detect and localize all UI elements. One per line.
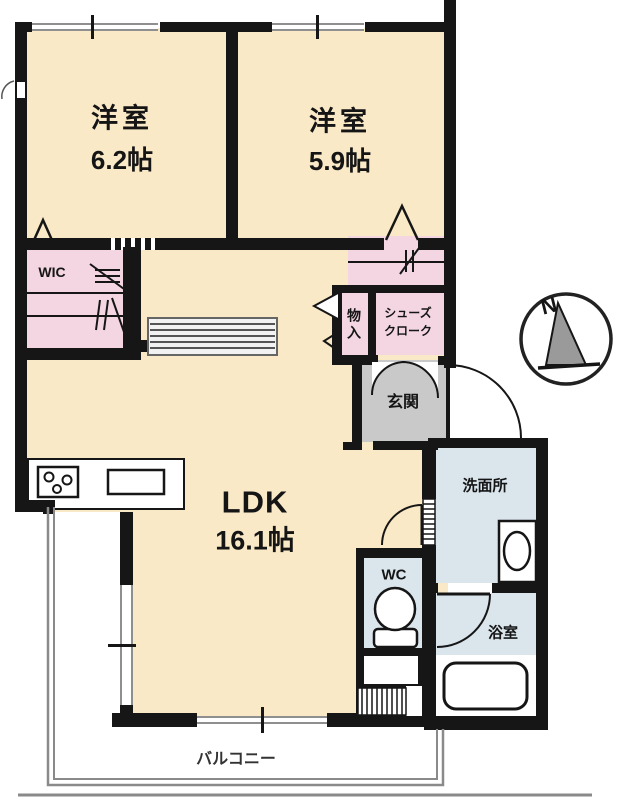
shoe-closet-label-line2: クローク [384,325,432,337]
meter-box-arc [2,81,14,99]
wall [43,500,55,514]
wall [428,438,548,448]
wc-label: WC [382,568,407,583]
wic-label: WIC [38,265,65,279]
wall [160,22,272,32]
storage-label: 物入 [347,308,361,342]
wall [15,238,105,250]
compass-icon [521,294,611,384]
wall [438,356,456,365]
wall [158,238,384,250]
wall [15,348,141,360]
wall [444,22,456,368]
wall [356,548,426,558]
wall [428,583,438,593]
bedroom1-name: 洋室 [91,106,153,133]
bedroom1-size: 6.2帖 [91,147,153,173]
bedroom2-name: 洋室 [309,109,371,136]
window-tick [108,644,136,647]
wall [120,512,133,585]
floor-plan: 洋室 6.2帖 洋室 5.9帖 WIC 物入 シューズ クローク 玄関 洗面所 … [0,0,624,800]
washroom-label: 洗面所 [462,479,507,494]
window [32,23,158,31]
wall [332,285,456,293]
balcony-left-area [27,512,120,716]
wall [226,28,238,245]
balcony-label: バルコニー [196,752,276,768]
entry-door-icon [448,365,521,438]
wall [15,100,27,512]
wall [15,22,27,80]
wall [492,583,548,593]
window-tick [91,15,94,39]
wall [352,358,362,450]
wall [123,247,141,352]
wall [332,285,342,363]
wall [365,22,456,32]
wall [343,442,354,450]
service-gap [406,686,422,716]
bathtub-platform [432,655,536,716]
room-washroom [432,448,536,583]
wall [356,558,364,650]
wall [422,448,436,499]
wall [368,293,376,363]
ldk-name: LDK [222,487,289,518]
wall [424,716,548,730]
bathroom-label: 浴室 [488,626,518,641]
window-tick [316,15,319,39]
compass-north-label: N [539,293,560,318]
vanity-box [364,656,418,684]
shoe-closet-label-line1: シューズ [384,307,431,319]
wall [141,340,157,352]
window-tick [261,707,264,733]
meter-box-door [15,80,27,100]
entry-label: 玄関 [387,395,419,411]
bedroom2-size: 5.9帖 [309,148,371,174]
wall [120,705,133,727]
ldk-size: 16.1帖 [215,528,295,555]
